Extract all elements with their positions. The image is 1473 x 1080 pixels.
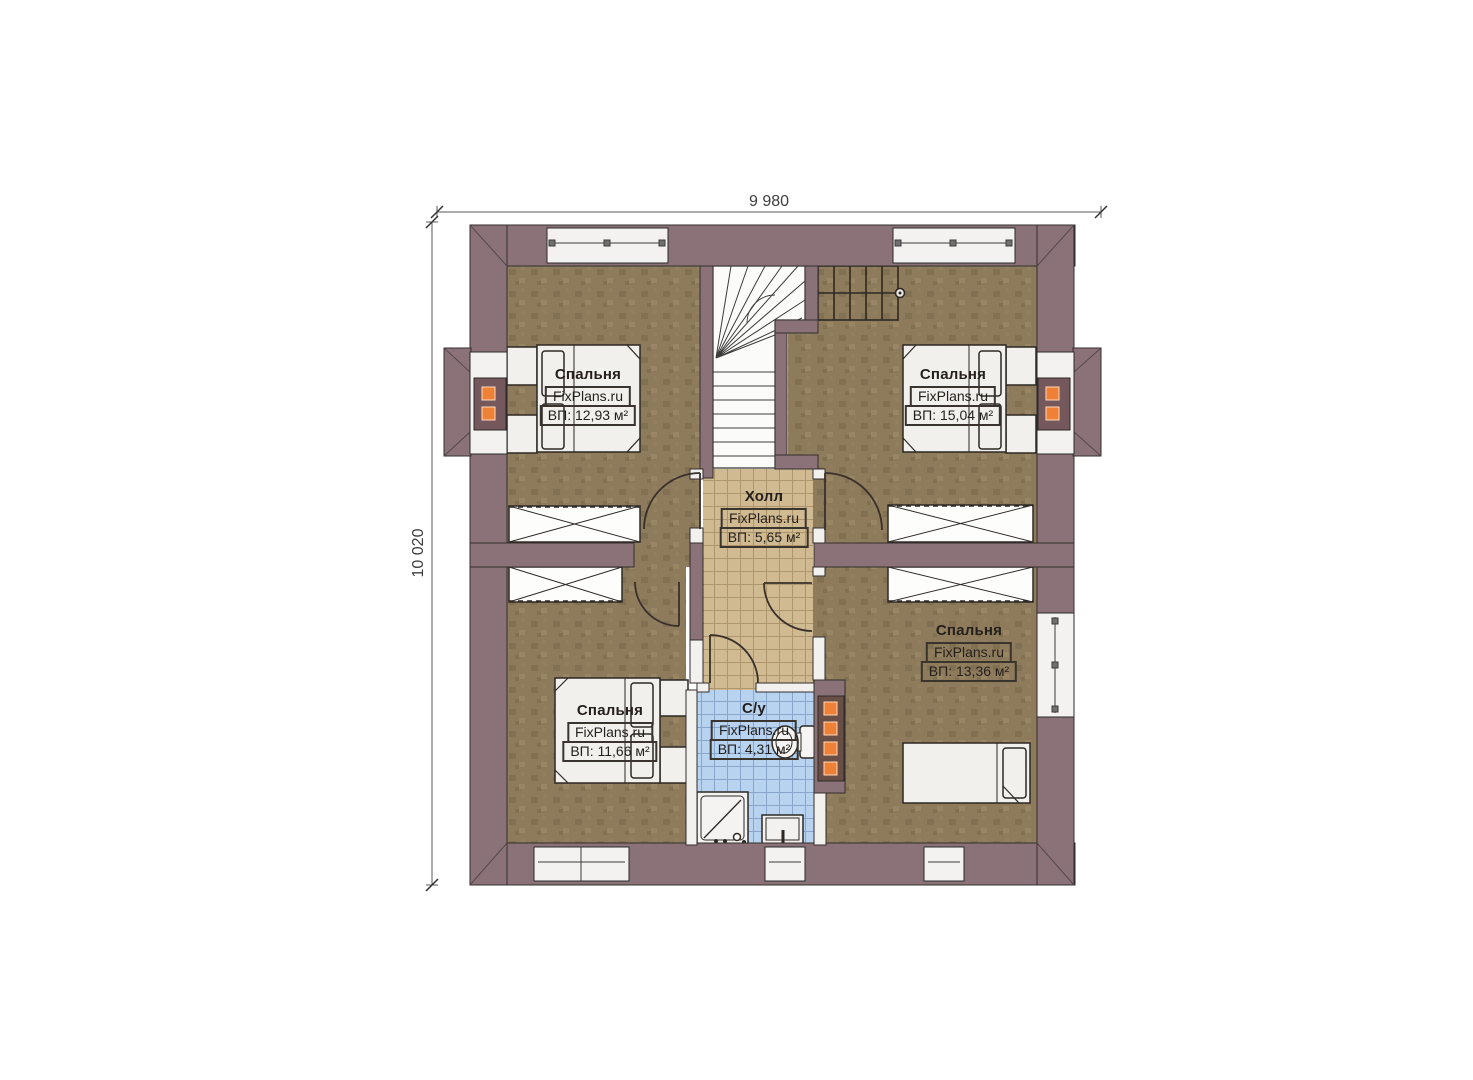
room-name: Холл <box>745 488 783 506</box>
shower <box>697 792 748 844</box>
wall-bump-left <box>444 348 471 456</box>
wardrobe-bottom-right <box>888 567 1033 602</box>
nightstand <box>660 680 688 716</box>
radiator-bathroom <box>818 696 844 781</box>
nightstand <box>507 415 537 453</box>
room-area: ВП: 13,36 м² <box>921 661 1017 682</box>
room-area: ВП: 12,93 м² <box>540 405 636 426</box>
floor-plan-canvas: 9 980 10 020 Спальня FixPlans.ru ВП: 12,… <box>0 0 1473 1080</box>
radiator-left <box>474 378 506 430</box>
room-name: Спальня <box>577 702 643 720</box>
partition-bathroom-top <box>756 683 814 692</box>
wall-stair-right <box>775 333 787 468</box>
room-name: Спальня <box>920 366 986 384</box>
room-label-hall: Холл FixPlans.ru ВП: 5,65 м² <box>720 488 809 548</box>
wardrobe-bottom-left <box>509 567 622 602</box>
nightstand <box>1006 347 1036 385</box>
wall-middle-right <box>814 543 1074 567</box>
room-label-bathroom: С/у FixPlans.ru ВП: 4,31 м² <box>710 700 799 760</box>
room-name: Спальня <box>555 366 621 384</box>
wall-middle-left <box>470 543 634 567</box>
watermark: FixPlans.ru <box>545 386 631 407</box>
nightstand <box>660 747 688 783</box>
wall-stair-divider <box>805 266 818 326</box>
window-bottom-bathroom <box>765 847 805 881</box>
window-bottom-right <box>924 847 964 881</box>
watermark: FixPlans.ru <box>926 642 1012 663</box>
room-label-bedroom-top-right: Спальня FixPlans.ru ВП: 15,04 м² <box>905 366 1001 426</box>
wall-hall-left <box>690 543 703 640</box>
room-name: Спальня <box>936 622 1002 640</box>
room-area: ВП: 15,04 м² <box>905 405 1001 426</box>
sink <box>762 815 803 845</box>
nightstand <box>1006 415 1036 453</box>
wall-stair-left <box>700 266 713 478</box>
room-name: С/у <box>742 700 766 718</box>
watermark: FixPlans.ru <box>721 508 807 529</box>
watermark: FixPlans.ru <box>567 722 653 743</box>
dimension-height-label: 10 020 <box>410 529 428 578</box>
dimension-width-label: 9 980 <box>749 193 789 211</box>
wall-bump-right <box>1073 348 1101 456</box>
watermark: FixPlans.ru <box>711 720 797 741</box>
wall-stair-stub <box>775 455 818 469</box>
room-label-bedroom-right: Спальня FixPlans.ru ВП: 13,36 м² <box>921 622 1017 682</box>
floor-doorway-strip <box>634 543 690 567</box>
room-area: ВП: 4,31 м² <box>710 739 799 760</box>
watermark: FixPlans.ru <box>910 386 996 407</box>
wardrobe-top-left <box>509 506 640 542</box>
room-area: ВП: 11,66 м² <box>562 741 657 762</box>
nightstand <box>507 347 537 385</box>
room-area: ВП: 5,65 м² <box>720 527 809 548</box>
room-label-bedroom-bottom-left: Спальня FixPlans.ru ВП: 11,66 м² <box>562 702 657 762</box>
room-label-bedroom-top-left: Спальня FixPlans.ru ВП: 12,93 м² <box>540 366 636 426</box>
wardrobe-top-right <box>888 505 1033 542</box>
partition-bathroom-left <box>686 690 697 845</box>
bed-bottom-right <box>903 743 1030 803</box>
wall-stair-corner <box>775 320 818 333</box>
radiator-right <box>1038 378 1070 430</box>
